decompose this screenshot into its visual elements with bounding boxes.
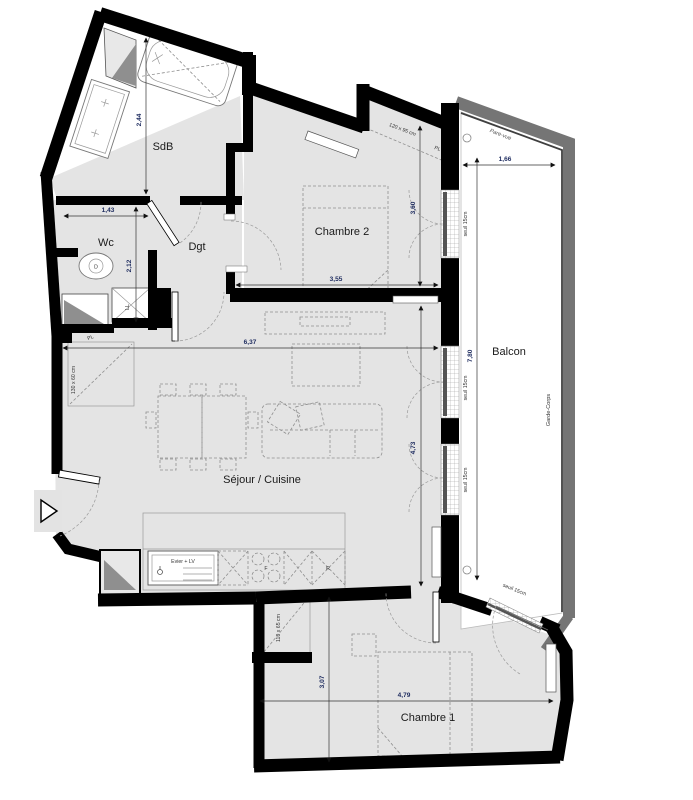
closet-sejour-size: 130 x 60 cm: [71, 366, 77, 394]
floorplan-drawing: D LL: [0, 0, 693, 800]
label-sdb: SdB: [153, 141, 174, 153]
chambre1-door-leaf: [433, 592, 439, 642]
window-chambre2: [441, 190, 459, 258]
balcony-floor: [461, 112, 562, 629]
dim-ch1-h: 3,07: [319, 675, 326, 688]
seuil-sejour-2: seuil 15cm: [463, 468, 469, 493]
dim-ch2-w: 3,55: [330, 276, 343, 283]
radiator-sejour-niche: [393, 296, 438, 303]
label-wc: Wc: [98, 237, 114, 249]
floorplan-page: D LL: [0, 0, 693, 800]
dgt-door-leaf: [172, 292, 178, 341]
radiator-sejour: [432, 527, 441, 577]
dim-sejour-h: 4,73: [410, 441, 417, 454]
garde-corps-label: Garde-Corps: [546, 394, 552, 427]
closet-chambre1-size: 110 x 65 cm: [276, 614, 282, 642]
dim-wc-w: 1,43: [102, 207, 115, 214]
washer-label: LL: [125, 304, 131, 310]
label-chambre2: Chambre 2: [315, 226, 369, 238]
toilet-mark: D: [94, 265, 98, 271]
fridge-label: R: [326, 566, 330, 572]
floor-chambre1: [258, 600, 565, 764]
sink-label: Evier + LV: [171, 559, 195, 565]
dim-ch1-w: 4,79: [398, 692, 411, 699]
dim-wc-h: 2,12: [126, 259, 133, 272]
dim-balcon-w: 1,66: [499, 156, 512, 163]
dim-ch2-h: 3,60: [410, 201, 417, 214]
radiator-chambre1: [546, 644, 556, 692]
balcony: [456, 102, 569, 650]
oven-label: F: [264, 566, 267, 572]
label-balcon: Balcon: [492, 346, 526, 358]
window-sejour-2: [441, 444, 459, 515]
dim-balcon-l: 7,80: [467, 349, 474, 362]
dim-sdb-h: 2,44: [136, 113, 143, 126]
window-sejour-1: [441, 346, 459, 418]
label-sejour: Séjour / Cuisine: [223, 474, 301, 486]
seuil-sejour-1: seuil 15cm: [463, 376, 469, 401]
dim-sejour-w: 6,37: [244, 339, 257, 346]
seuil-chambre2: seuil 15cm: [463, 212, 469, 237]
label-dgt: Dgt: [188, 241, 205, 253]
label-chambre1: Chambre 1: [401, 712, 455, 724]
